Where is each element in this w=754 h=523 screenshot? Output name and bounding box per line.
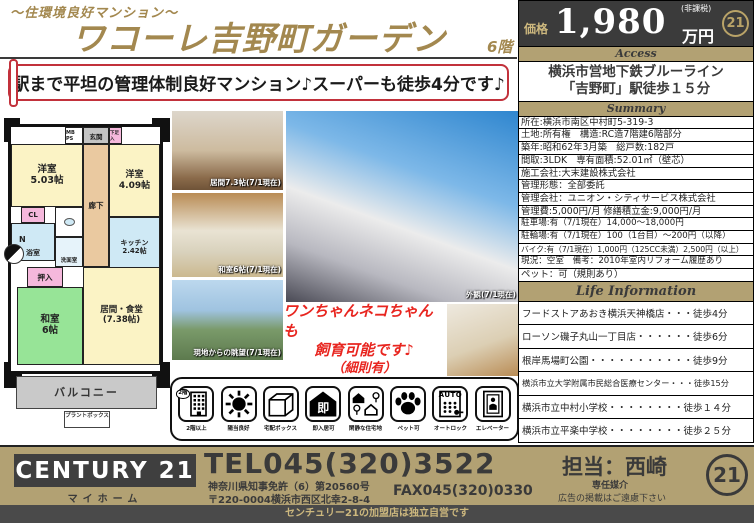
summary-row: 駐輪場:有（7/1現在）100（1台目）～200円（以降） (518, 231, 754, 244)
photo-caption: 外観(7/1現在) (466, 289, 516, 300)
house-icon: 即 (305, 386, 341, 422)
disclaimer-bar: センチュリー21の加盟店は独立自営です (0, 505, 754, 523)
price-label: 価格 (524, 20, 548, 37)
paw-icon (390, 386, 426, 422)
photo-view: 現地からの眺望(7/1現在) (172, 280, 283, 360)
life-row: フードストアあおき横浜天神橋店・・・徒歩4分 (518, 302, 754, 326)
feature-elevator: エレベーター (472, 386, 513, 432)
summary-row: 現況：空室 備考：2010年室内リフォーム履歴あり (518, 256, 754, 269)
property-title: ワコーレ吉野町ガーデン (72, 12, 446, 60)
fax-number: FAX045(320)0330 (393, 483, 533, 499)
feature-sunlight: 陽当良好 (218, 386, 259, 432)
feature-immediate-move-in: 即 即入居可 (303, 386, 344, 432)
summary-row: 施工会社:大末建設株式会社 (518, 168, 754, 181)
summary-row: ペット：可（規則あり） (518, 269, 754, 282)
photo-living-room: 居間7.3帖(7/1現在) (172, 111, 283, 190)
photo-dog-and-cat (447, 304, 518, 376)
feature-pets-allowed: ペット可 (388, 386, 429, 432)
access-line1: 横浜市営地下鉄ブルーライン (519, 64, 753, 81)
sun-icon (221, 386, 257, 422)
feature-icons-box: 2階 2階以上 陽当良好 宅配ボックス 即 即入居可 (170, 377, 519, 441)
plan-room-living-dining: 居間・食堂 (7.38帖) (83, 267, 160, 365)
life-row: ローソン磯子丸山一丁目店・・・・・・徒歩6分 (518, 325, 754, 349)
plan-room-toilet (55, 207, 83, 237)
life-row: 横浜市立中村小学校・・・・・・・・徒歩１４分 (518, 396, 754, 420)
photo-washitsu: 和室6帖(7/1現在) (172, 193, 283, 277)
building-floor-icon: 2階 (178, 386, 214, 422)
photo-caption: 居間7.3帖(7/1現在) (210, 177, 281, 188)
autolock-icon: AUTO (432, 386, 468, 422)
price-value: 1,980 (555, 2, 666, 42)
plan-room-closet: CL (21, 207, 45, 223)
plan-room-west2: 洋室 4.09帖 (109, 144, 160, 217)
plan-room-oshiire: 押入 (27, 267, 63, 287)
agent-name: 担当：西崎 (562, 451, 667, 481)
floor-number: 6階 (487, 36, 512, 57)
catch-copy-box: 駅まで平坦の管理体制良好マンション♪スーパーも徒歩4分です♪ (8, 64, 509, 101)
plan-room-entrance: 玄関 (83, 127, 109, 144)
feature-quiet-area: 閑静な住宅地 (345, 386, 386, 432)
plan-unit-outline: MB PS 玄関 下足入 洋室 5.03帖 廊下 洋室 4.09帖 CL 浴室 … (8, 124, 163, 374)
life-row: 横浜市立平楽中学校・・・・・・・・徒歩２５分 (518, 419, 754, 443)
life-row: 根岸馬場町公園・・・・・・・・・・・徒歩9分 (518, 349, 754, 373)
summary-row: 駐車場:有（7/1現在）14,000～18,000円 (518, 218, 754, 231)
life-information-heading: Life Information (518, 282, 754, 302)
real-estate-flyer: ～住環境良好マンション～ ワコーレ吉野町ガーデン 6階 駅まで平坦の管理体制良好… (0, 0, 754, 523)
summary-row: 築年:昭和62年3月築 総戸数:182戸 (518, 142, 754, 155)
catch-copy-text: 駅まで平坦の管理体制良好マンション♪スーパーも徒歩4分です♪ (12, 70, 504, 95)
phone-number: TEL045(320)3522 (204, 447, 496, 480)
century21-seal-icon: 21 (706, 454, 748, 496)
price-tax-note: (非課税) (681, 3, 711, 14)
office-address: 〒220-0004横浜市西区北幸2-8-4 (208, 491, 370, 506)
life-row: 横浜市立大学附属市民総合医療センター・・・徒歩15分 (518, 372, 754, 396)
plan-room-shoe-closet: 下足入 (109, 127, 122, 144)
summary-row: 管理費:5,000円/月 修繕積立金:9,000円/月 (518, 206, 754, 219)
feature-autolock: AUTO オートロック (430, 386, 471, 432)
delivery-box-icon (263, 386, 299, 422)
pets-allowed-note: ワンちゃんネコちゃんも 飼育可能です♪ （細則有） (283, 303, 445, 377)
header-divider (0, 57, 517, 59)
feature-delivery-box: 宅配ボックス (260, 386, 301, 432)
summary-row: 土地:所有権 構造:RC造7階建6階部分 (518, 129, 754, 142)
photo-caption: 和室6帖(7/1現在) (218, 264, 281, 275)
feature-upper-floor: 2階 2階以上 (176, 386, 217, 432)
ad-note: 広告の掲載はご遠慮下さい (558, 491, 666, 504)
plan-room-hallway: 廊下 (83, 144, 109, 267)
info-column: 価格 1,980 (非課税) 万円 21 Access 横浜市営地下鉄ブルーライ… (518, 0, 754, 443)
century21-seal-icon: 21 (722, 10, 749, 37)
price-box: 価格 1,980 (非課税) 万円 21 (518, 0, 754, 47)
plan-room-west1: 洋室 5.03帖 (11, 144, 83, 207)
plan-room-washroom: 洗面室 (55, 237, 83, 267)
catch-copy-ornament (9, 59, 18, 107)
plan-room-mbps: MB PS (65, 127, 83, 144)
plan-balcony: バルコニー (16, 376, 157, 409)
access-line2: 「吉野町」駅徒歩１５分 (519, 81, 753, 98)
access-box: 横浜市営地下鉄ブルーライン 「吉野町」駅徒歩１５分 (518, 62, 754, 102)
plan-plant-box: プラントボックス (64, 411, 110, 428)
compass-icon: N (4, 244, 24, 264)
houses-trees-icon (348, 386, 384, 422)
price-unit: 万円 (682, 23, 714, 47)
photo-exterior: 外観(7/1現在) (286, 111, 518, 302)
summary-row: 間取:3LDK 専有面積:52.01㎡（壁芯） (518, 155, 754, 168)
summary-row: 管理形態：全部委託 (518, 180, 754, 193)
toilet-icon (64, 218, 75, 226)
floor-plan: MB PS 玄関 下足入 洋室 5.03帖 廊下 洋室 4.09帖 CL 浴室 … (4, 112, 170, 445)
plan-room-washitsu: 和室 6帖 (17, 287, 83, 365)
store-name: マイホーム (14, 490, 196, 505)
photo-caption: 現地からの眺望(7/1現在) (193, 347, 281, 358)
summary-row: バイク:有（7/1現在）1,000円（125CC未満）2,500円（以上） (518, 244, 754, 257)
elevator-icon (475, 386, 511, 422)
summary-row: 管理会社：ユニオン・シティサービス株式会社 (518, 193, 754, 206)
access-heading: Access (518, 47, 754, 62)
century21-logo: CENTURY 21 (14, 454, 196, 487)
summary-heading: Summary (518, 102, 754, 117)
summary-row: 所在:横浜市南区中村町5-319-3 (518, 117, 754, 130)
mediation-type: 専任媒介 (592, 478, 628, 491)
footer: CENTURY 21 マイホーム TEL045(320)3522 神奈川県知事免… (0, 445, 754, 505)
